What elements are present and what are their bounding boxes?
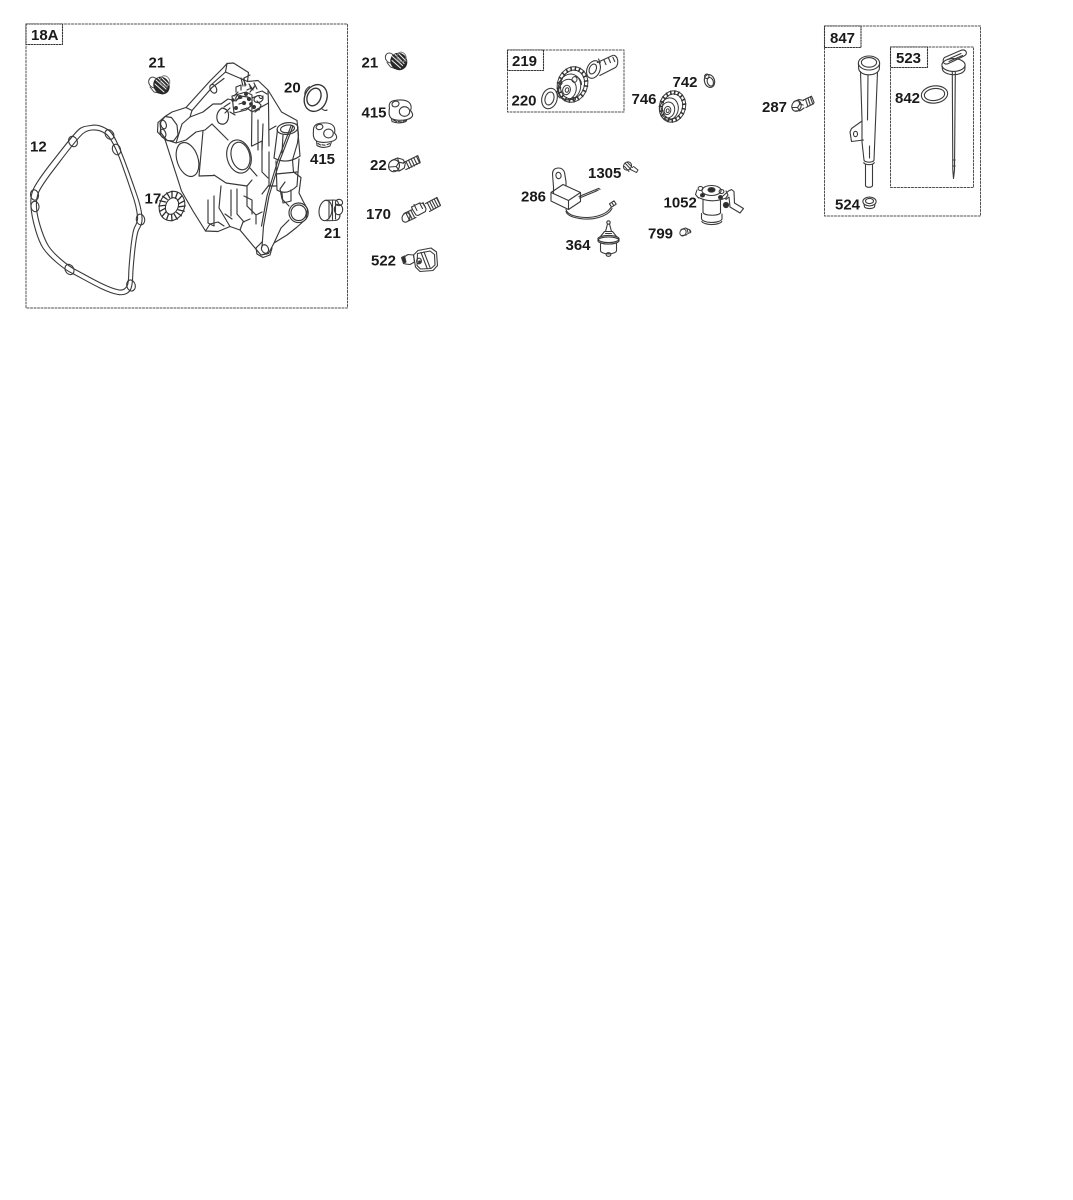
svg-text:522: 522 [371, 253, 396, 270]
svg-text:415: 415 [310, 151, 335, 168]
svg-text:21: 21 [149, 55, 166, 72]
svg-text:742: 742 [673, 74, 698, 91]
svg-text:18A: 18A [31, 27, 59, 44]
svg-text:219: 219 [512, 53, 537, 70]
svg-text:170: 170 [366, 206, 391, 223]
svg-text:1052: 1052 [664, 195, 697, 212]
svg-text:1305: 1305 [588, 165, 621, 182]
svg-text:524: 524 [835, 197, 861, 214]
svg-text:847: 847 [830, 30, 855, 47]
svg-text:364: 364 [566, 237, 592, 254]
svg-text:842: 842 [895, 90, 920, 107]
svg-text:22: 22 [370, 157, 387, 174]
svg-text:746: 746 [632, 91, 657, 108]
svg-text:220: 220 [512, 93, 537, 110]
svg-text:20: 20 [284, 80, 301, 97]
svg-text:17: 17 [145, 191, 162, 208]
svg-text:21: 21 [362, 55, 379, 72]
svg-text:21: 21 [324, 225, 341, 242]
svg-text:286: 286 [521, 189, 546, 206]
svg-text:799: 799 [648, 226, 673, 243]
svg-text:287: 287 [762, 99, 787, 116]
svg-text:12: 12 [30, 139, 47, 156]
svg-text:523: 523 [896, 50, 921, 67]
svg-text:415: 415 [362, 105, 387, 122]
